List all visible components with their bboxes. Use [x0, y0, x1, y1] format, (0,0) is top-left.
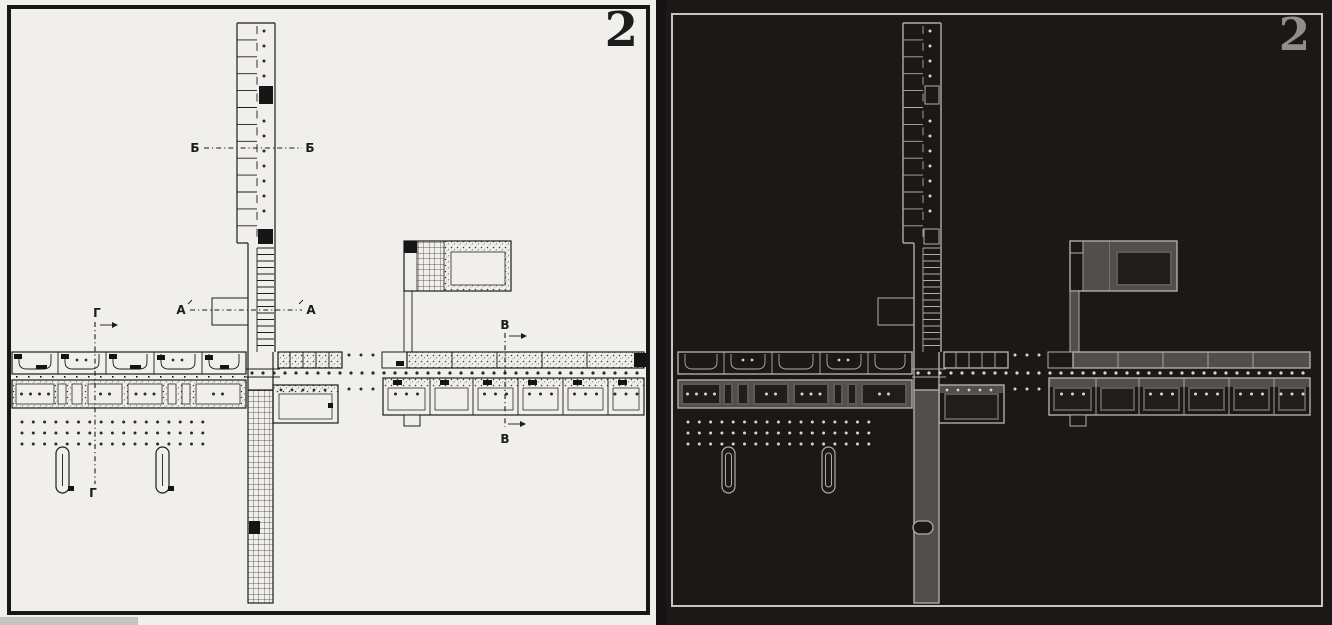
section-label: Б — [190, 141, 199, 155]
figure-number-left: 2 — [605, 6, 638, 54]
right-panel-dark-redraw: 2 — [666, 0, 1332, 625]
section-label: Г — [93, 306, 101, 320]
right-plan-drawing — [666, 0, 1332, 625]
section-label: В — [500, 432, 509, 446]
left-plan-drawing: ББААВВГГ — [0, 0, 666, 625]
section-label: В — [500, 318, 509, 332]
figure-number-right: 2 — [1279, 12, 1310, 57]
annex-boxes — [878, 298, 914, 325]
band-lower-row-west — [12, 380, 246, 408]
section-label: Г — [89, 486, 97, 500]
band-lower-row-west — [678, 380, 912, 408]
section-label: А — [176, 303, 186, 317]
architectural-plan-figure-pair: ББААВВГГ 2 2 — [0, 0, 1332, 625]
section-label: А — [306, 303, 316, 317]
service-corridor — [913, 390, 939, 603]
scan-artifact-bar — [0, 617, 138, 625]
service-corridor — [248, 390, 273, 603]
annex-boxes — [212, 298, 248, 325]
section-label: Б — [305, 141, 314, 155]
left-panel-scanned-plan: ББААВВГГ 2 — [0, 0, 666, 625]
